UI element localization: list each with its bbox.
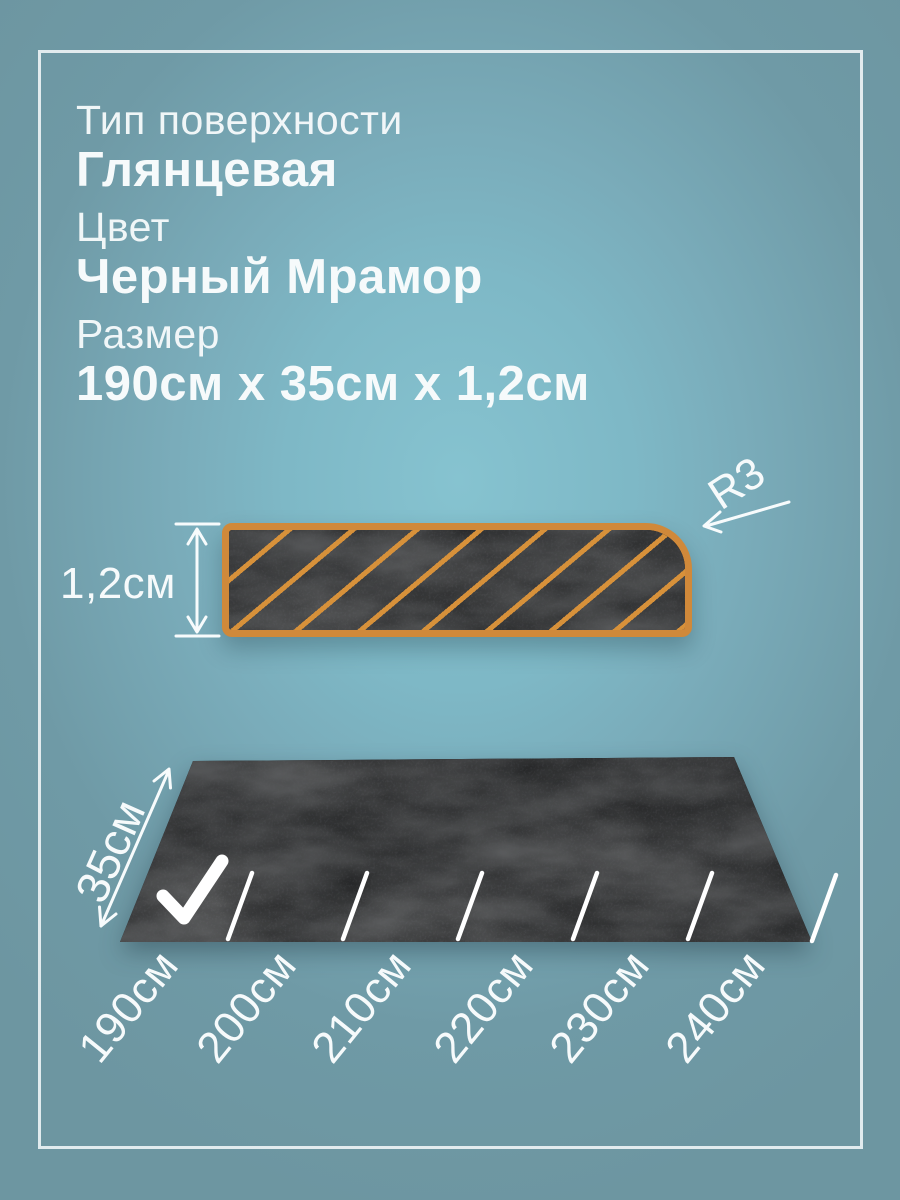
slab-surface [120,754,812,942]
hatch-pattern [229,530,685,630]
cross-section-profile [222,523,692,637]
marble-highlights [120,754,812,942]
surface-type-label: Тип поверхности [76,98,590,143]
slab-perspective-view [120,754,812,942]
color-label: Цвет [76,205,590,250]
spec-surface: Тип поверхности Глянцевая [76,98,590,198]
color-value: Черный Мрамор [76,250,590,305]
surface-type-value: Глянцевая [76,143,590,198]
infographic-canvas: Тип поверхности Глянцевая Цвет Черный Мр… [0,0,900,1200]
size-value: 190см х 35см х 1,2см [76,357,590,412]
spec-color: Цвет Черный Мрамор [76,205,590,305]
product-specs: Тип поверхности Глянцевая Цвет Черный Мр… [76,98,590,419]
spec-size: Размер 190см х 35см х 1,2см [76,312,590,412]
thickness-label: 1,2см [60,559,176,609]
size-label: Размер [76,312,590,357]
